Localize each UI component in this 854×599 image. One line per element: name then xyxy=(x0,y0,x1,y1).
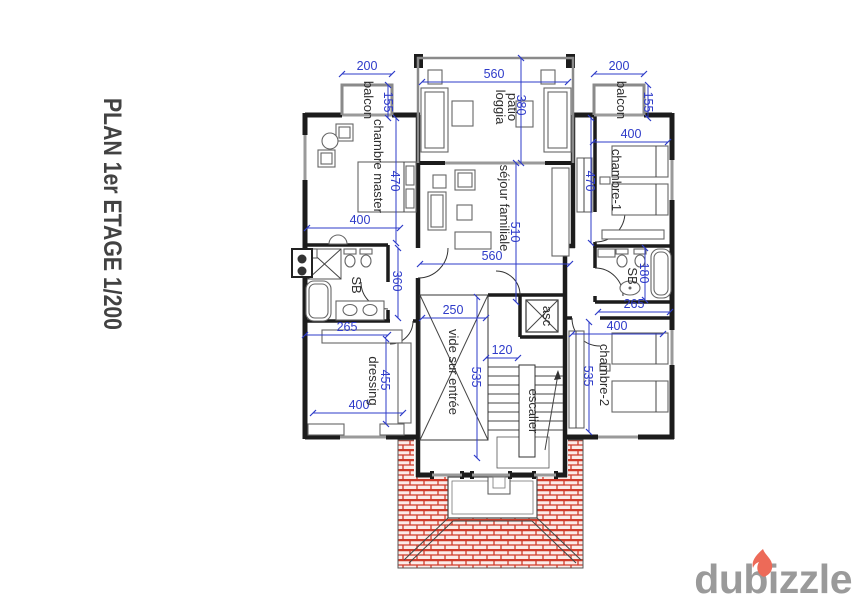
brand-text: dubizzle xyxy=(694,556,852,599)
plan-title: PLAN 1er ETAGE 1/200 xyxy=(98,98,126,330)
dim-balcon-right-depth: 155 xyxy=(641,92,655,113)
room-label-loggia: loggia xyxy=(493,90,508,125)
dim-sb-right-width: 265 xyxy=(624,297,645,311)
dim-chambre2-height: 535 xyxy=(581,366,595,387)
dim-hall-height: 360 xyxy=(390,271,404,292)
room-label-balcon-left: balcon xyxy=(361,81,376,119)
room-label-escalier: escalier xyxy=(526,389,541,434)
dim-balcon-left-width: 200 xyxy=(357,59,378,73)
floor-plan-canvas: 200 560 200 400 560 400 265 400 250 120 … xyxy=(0,0,854,599)
room-label-sb-left: SB xyxy=(349,276,364,293)
dim-vide-width: 250 xyxy=(443,303,464,317)
room-label-chambre-master: chambre master xyxy=(371,119,386,214)
room-label-sb-right: SB xyxy=(625,267,640,284)
room-label-chambre-1: chambre-1 xyxy=(609,149,624,211)
dim-balcon-right-width: 200 xyxy=(609,59,630,73)
watermark-logo: dubizzle xyxy=(694,549,852,599)
dim-balcon-left-depth: 155 xyxy=(381,92,395,113)
dim-chambre1-height: 470 xyxy=(583,171,597,192)
dim-master-height: 470 xyxy=(388,171,402,192)
dim-chambre2-width: 400 xyxy=(607,319,628,333)
dim-chambre1-width: 400 xyxy=(621,127,642,141)
dim-vide-height: 535 xyxy=(469,367,483,388)
room-label-vide: vide sur entrée xyxy=(446,329,461,415)
roof-hatch xyxy=(398,436,583,568)
room-label-sejour: séjour familiale xyxy=(497,165,512,252)
room-label-asc: asc xyxy=(540,306,555,327)
dim-patio-width: 560 xyxy=(484,67,505,81)
floor-plan-page: 200 560 200 400 560 400 265 400 250 120 … xyxy=(0,0,854,599)
dim-stair-passage: 120 xyxy=(492,343,513,357)
room-label-balcon-right: balcon xyxy=(614,81,629,119)
room-label-dressing: dressing xyxy=(366,356,381,405)
dim-sb-left-width: 265 xyxy=(337,320,358,334)
dim-master-width: 400 xyxy=(350,213,371,227)
room-label-chambre-2: chambre-2 xyxy=(597,344,612,406)
